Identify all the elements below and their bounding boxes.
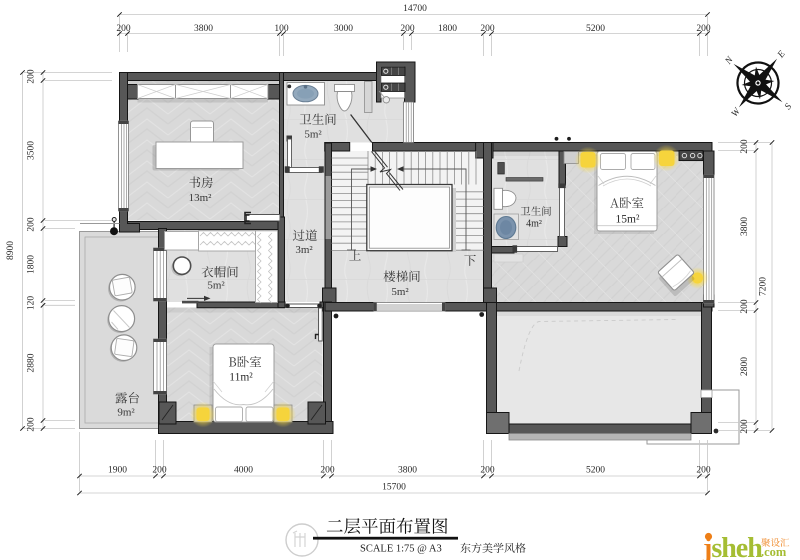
svg-text:4000: 4000 <box>234 466 253 476</box>
svg-text:200: 200 <box>696 24 711 34</box>
svg-text:200: 200 <box>116 24 131 34</box>
svg-text:11m²: 11m² <box>229 372 253 384</box>
svg-text:5m²: 5m² <box>304 129 322 141</box>
svg-text:5200: 5200 <box>586 466 605 476</box>
svg-text:2800: 2800 <box>740 357 750 376</box>
svg-text:200: 200 <box>740 139 750 154</box>
svg-text:200: 200 <box>400 24 415 34</box>
svg-text:200: 200 <box>480 24 495 34</box>
svg-text:120: 120 <box>27 296 37 311</box>
svg-text:7200: 7200 <box>759 277 769 296</box>
svg-text:200: 200 <box>740 419 750 434</box>
svg-text:13m²: 13m² <box>189 192 213 204</box>
svg-text:4m²: 4m² <box>526 219 542 230</box>
svg-text:5m²: 5m² <box>207 280 225 292</box>
svg-text:200: 200 <box>152 466 167 476</box>
svg-text:200: 200 <box>480 466 495 476</box>
svg-text:3800: 3800 <box>398 466 417 476</box>
svg-text:200: 200 <box>27 417 37 432</box>
svg-text:3500: 3500 <box>27 141 37 160</box>
svg-text:5m²: 5m² <box>391 286 409 298</box>
svg-text:3000: 3000 <box>334 24 353 34</box>
svg-text:1800: 1800 <box>438 24 457 34</box>
svg-text:5200: 5200 <box>586 24 605 34</box>
svg-text:200: 200 <box>740 299 750 314</box>
svg-text:15700: 15700 <box>382 483 406 493</box>
svg-text:100: 100 <box>274 24 289 34</box>
svg-text:200: 200 <box>27 69 37 84</box>
svg-text:SCALE 1:75 @ A3: SCALE 1:75 @ A3 <box>360 544 442 555</box>
svg-text:15m²: 15m² <box>616 214 640 226</box>
svg-text:9m²: 9m² <box>117 407 135 419</box>
svg-text:14700: 14700 <box>403 4 427 14</box>
svg-text:3800: 3800 <box>194 24 213 34</box>
svg-text:2880: 2880 <box>27 353 37 372</box>
svg-text:3m²: 3m² <box>295 244 313 256</box>
svg-text:1800: 1800 <box>27 255 37 274</box>
svg-text:8900: 8900 <box>6 241 16 260</box>
svg-text:.com: .com <box>761 545 787 559</box>
svg-text:1900: 1900 <box>108 466 127 476</box>
svg-text:200: 200 <box>27 217 37 232</box>
svg-text:200: 200 <box>696 466 711 476</box>
svg-text:3800: 3800 <box>740 217 750 236</box>
svg-text:200: 200 <box>320 466 335 476</box>
